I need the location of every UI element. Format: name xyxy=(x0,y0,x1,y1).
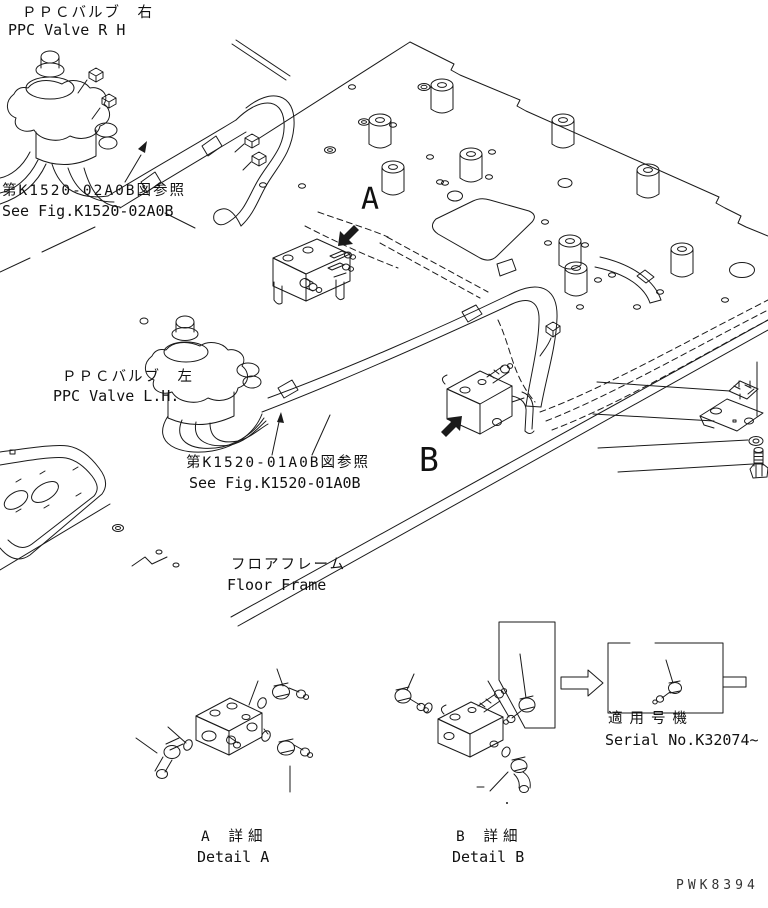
label-detail-a-jp: A 詳細 xyxy=(201,829,267,846)
valve-block-a xyxy=(273,239,356,304)
label-detail-a-en: Detail A xyxy=(197,849,269,866)
callout-arrow-icon xyxy=(561,670,603,696)
label-ppc-valve-rh-jp: ＰＰＣバルブ 右 xyxy=(22,5,154,22)
label-ppc-valve-rh-en: PPC Valve R H xyxy=(8,22,125,39)
arrow-b-icon xyxy=(441,416,462,437)
bolt xyxy=(750,448,768,479)
label-serial-en: Serial No.K32074~ xyxy=(605,732,759,749)
bracket xyxy=(700,399,763,431)
label-serial-jp: 適用号機 xyxy=(608,711,694,728)
marker-a: A xyxy=(361,182,379,217)
label-ppc-valve-lh-jp: ＰＰＣバルブ 左 xyxy=(62,369,194,386)
label-ref-fig-lh-en: See Fig.K1520-01A0B xyxy=(189,475,361,492)
doc-code: PWK8394 xyxy=(676,878,759,893)
detail-b-view xyxy=(395,622,555,804)
label-floor-frame-en: Floor Frame xyxy=(227,577,326,594)
serial-box xyxy=(608,643,723,713)
clamp xyxy=(729,381,758,399)
plate-holes xyxy=(260,84,755,310)
label-ref-fig-lh-jp: 第K1520-01A0B図参照 xyxy=(186,455,370,472)
diagram-page: ＰＰＣバルブ 右 PPC Valve R H 第K1520-02A0B図参照 S… xyxy=(0,0,768,908)
arrow-a-icon xyxy=(338,225,359,246)
marker-b: B xyxy=(419,440,439,479)
label-detail-b-jp: B 詳細 xyxy=(456,829,522,846)
label-ppc-valve-lh-en: PPC Valve L.H. xyxy=(53,388,179,405)
break-mark xyxy=(132,550,179,567)
label-ref-fig-rh-jp: 第K1520-02A0B図参照 xyxy=(2,183,186,200)
label-ref-fig-rh-en: See Fig.K1520-02A0B xyxy=(2,203,174,220)
serial-callout xyxy=(561,643,746,713)
line-drawing xyxy=(0,0,768,908)
label-detail-b-en: Detail B xyxy=(452,849,524,866)
washer xyxy=(749,437,763,446)
pedal-plate xyxy=(0,445,124,570)
hidden-hose-dashed xyxy=(305,212,768,430)
leader-ref-lh xyxy=(272,412,330,455)
detail-a-view xyxy=(136,669,313,792)
floor-frame-plate xyxy=(0,42,768,626)
label-floor-frame-jp: フロアフレーム xyxy=(231,557,346,574)
